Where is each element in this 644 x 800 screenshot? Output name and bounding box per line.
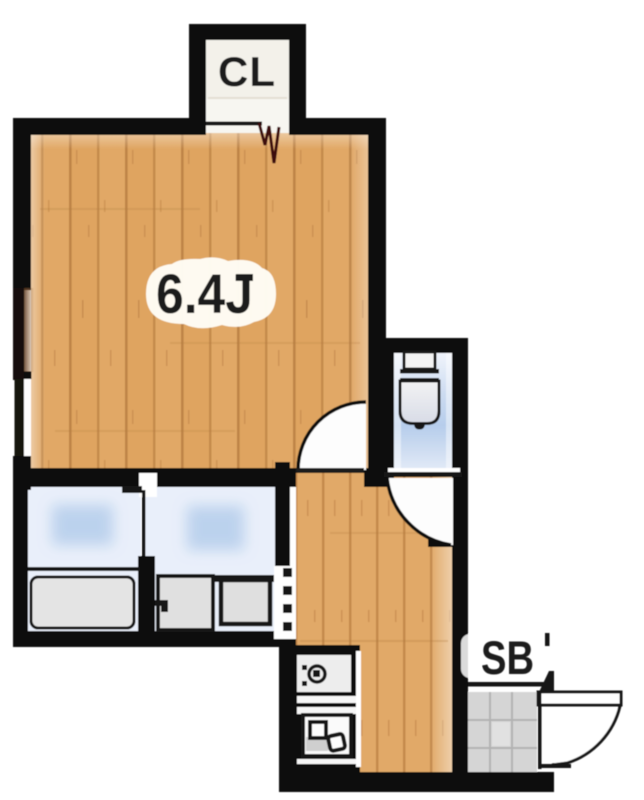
svg-text:SB: SB (481, 631, 534, 684)
svg-text:6.4J: 6.4J (156, 262, 253, 325)
svg-text:CL: CL (218, 48, 276, 95)
